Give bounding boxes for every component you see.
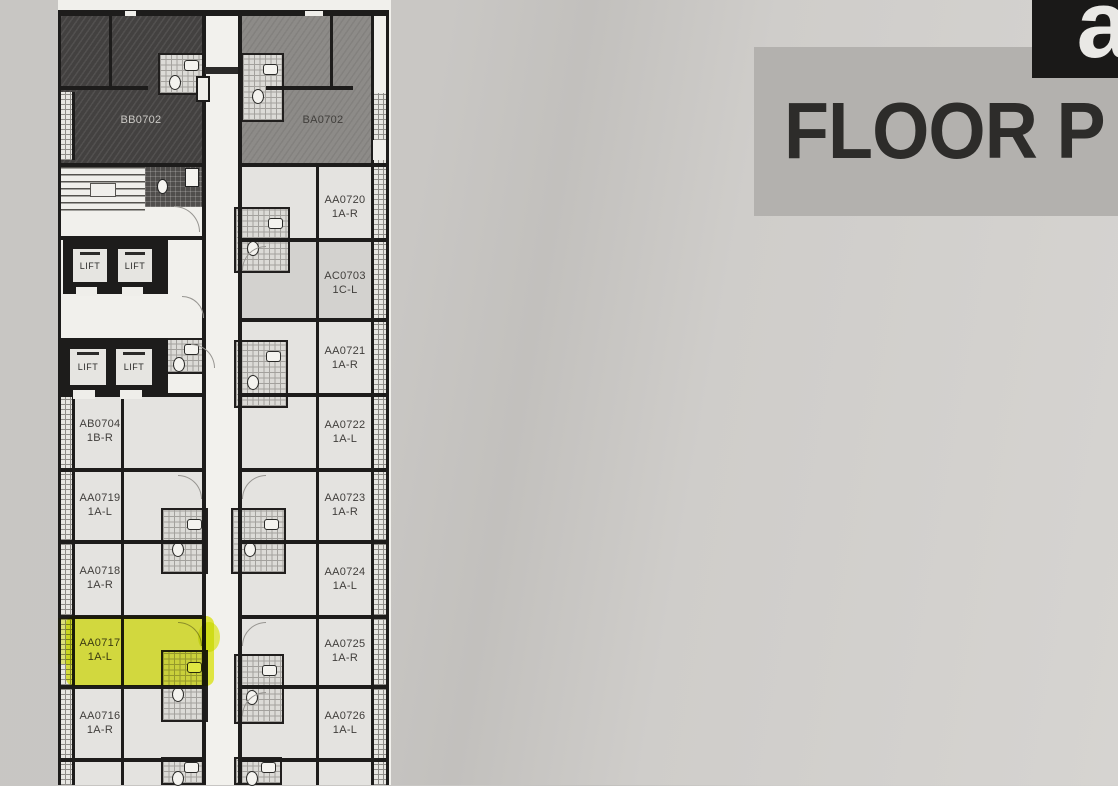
wall bbox=[72, 92, 75, 160]
unit-label-AA0721: AA07211A-R bbox=[310, 344, 380, 372]
wall bbox=[266, 86, 353, 90]
lift-label: LIFT bbox=[125, 261, 146, 271]
unit-label-AA0719: AA07191A-L bbox=[65, 491, 135, 519]
lift-door-gap bbox=[120, 390, 142, 399]
wall bbox=[238, 393, 389, 397]
toilet bbox=[157, 179, 168, 194]
highlight-overlay bbox=[198, 622, 220, 652]
lift-door-gap bbox=[73, 390, 95, 399]
bathroom-pod bbox=[234, 340, 288, 408]
service-box bbox=[196, 76, 210, 102]
balcony-gap bbox=[373, 140, 386, 160]
balcony-strip bbox=[60, 92, 72, 160]
lift-label: LIFT bbox=[80, 261, 101, 271]
door-arc bbox=[174, 206, 200, 232]
unit-label-AA0724: AA07241A-L bbox=[310, 565, 380, 593]
page-title: FLOOR P bbox=[784, 85, 1105, 177]
floor-plan: LIFT LIFT LIFT LIFT BB0702 BA0702 AA0720… bbox=[58, 0, 391, 785]
unit-label-AA0723: AA07231A-R bbox=[310, 491, 380, 519]
bathtub bbox=[185, 168, 199, 187]
wall bbox=[316, 167, 319, 785]
wall bbox=[58, 540, 205, 544]
door-arc bbox=[182, 296, 204, 318]
brand-logo: a bbox=[1032, 0, 1118, 78]
lift-label: LIFT bbox=[124, 362, 145, 372]
wall bbox=[238, 758, 389, 762]
lift: LIFT bbox=[68, 347, 108, 387]
lift: LIFT bbox=[116, 247, 154, 284]
unit-label-AA0722: AA07221A-L bbox=[310, 418, 380, 446]
lift-door-gap bbox=[122, 287, 143, 296]
wall bbox=[238, 318, 389, 322]
unit-label-AA0718: AA07181A-R bbox=[65, 564, 135, 592]
wall bbox=[58, 163, 205, 167]
lift: LIFT bbox=[114, 347, 154, 387]
wall bbox=[330, 16, 333, 86]
unit-label-AB0704: AB07041B-R bbox=[65, 417, 135, 445]
wall bbox=[238, 10, 242, 785]
wall bbox=[371, 16, 374, 785]
unit-label-AA0720: AA07201A-R bbox=[310, 193, 380, 221]
wall bbox=[238, 685, 389, 689]
unit-label-BA0702: BA0702 bbox=[283, 113, 363, 127]
wall bbox=[238, 615, 389, 619]
highlight-overlay bbox=[58, 618, 74, 664]
wall bbox=[58, 758, 205, 762]
wall bbox=[238, 163, 389, 167]
unit-label-AC0703: AC07031C-L bbox=[310, 269, 380, 297]
unit-label-AA0726: AA07261A-L bbox=[310, 709, 380, 737]
window-gap bbox=[125, 11, 136, 16]
wall bbox=[386, 10, 389, 785]
highlight-overlay bbox=[66, 616, 214, 686]
wall bbox=[238, 468, 389, 472]
lift-label: LIFT bbox=[78, 362, 99, 372]
window-gap bbox=[305, 11, 323, 16]
stair-landing bbox=[90, 183, 116, 197]
scanned-floorplan-page: { "title": { "text": "FLOOR P", "band_co… bbox=[0, 0, 1118, 785]
bathroom-block bbox=[145, 163, 202, 207]
unit-label-AA0716: AA07161A-R bbox=[65, 709, 135, 737]
corridor-door bbox=[205, 67, 238, 74]
wall bbox=[238, 540, 389, 544]
unit-label-AA0725: AA07251A-R bbox=[310, 637, 380, 665]
wall bbox=[61, 86, 148, 90]
brand-logo-letter: a bbox=[1077, 0, 1118, 78]
wall bbox=[238, 238, 389, 242]
lift-door-gap bbox=[76, 287, 97, 296]
unit-label-BB0702: BB0702 bbox=[101, 113, 181, 127]
wall bbox=[58, 10, 389, 16]
wall bbox=[58, 468, 205, 472]
lift: LIFT bbox=[71, 247, 109, 284]
wall bbox=[58, 10, 61, 785]
wall bbox=[109, 16, 112, 86]
